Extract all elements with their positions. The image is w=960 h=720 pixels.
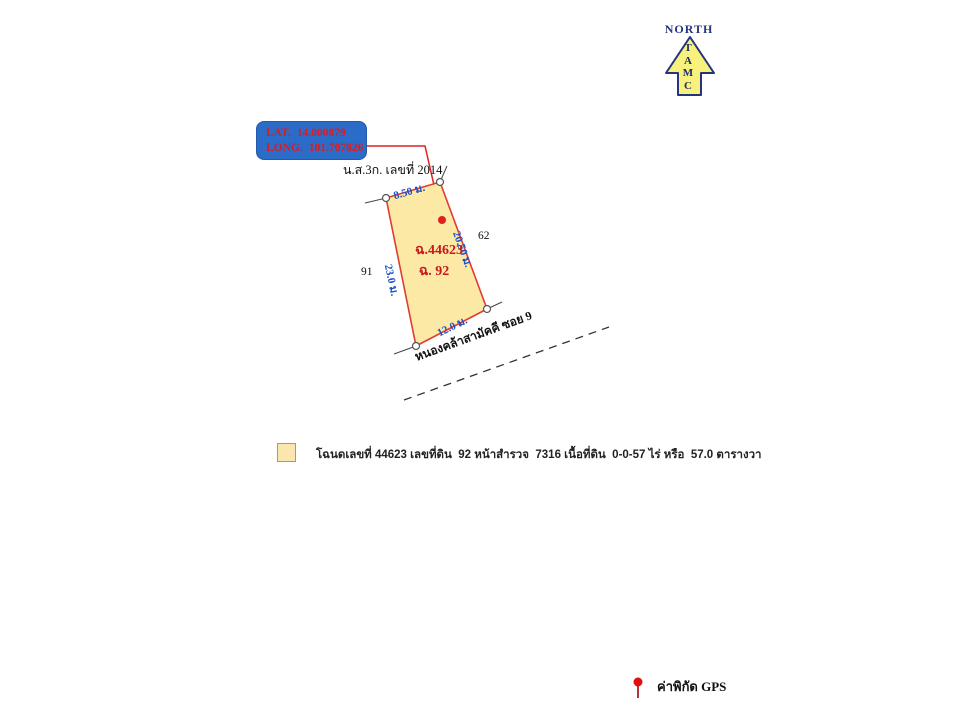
latitude-value: 14.000879 — [297, 127, 346, 140]
gps-legend-label: ค่าพิกัด GPS — [657, 676, 726, 697]
parcel-deed-number: ฉ.44623 — [407, 239, 471, 261]
latitude-label: LAT. — [266, 127, 291, 140]
longitude-label: LONG. — [266, 142, 303, 155]
latitude-row: LAT. 14.000879 — [266, 127, 366, 140]
legend-text: โฉนดเลขที่ 44623 เลขที่ดิน 92 หน้าสำรวจ … — [316, 446, 762, 464]
north-letter-a: A — [684, 55, 692, 68]
legend-parcel-swatch — [277, 443, 296, 462]
neighbor-parcel-left: 91 — [361, 266, 373, 278]
north-arrow-letters: T A M C — [676, 42, 700, 92]
north-letter-t: T — [684, 42, 691, 55]
gps-coordinates-box: LAT. 14.000879 LONG. 101.707826 — [256, 121, 367, 160]
parcel-land-number: ฉ. 92 — [407, 260, 461, 282]
gps-pin-icon — [634, 678, 643, 699]
survey-sketch-canvas: NORTH T A M C LAT. 14.000879 LONG. 101.7… — [0, 0, 960, 720]
north-label: NORTH — [652, 22, 726, 37]
neighbor-parcel-right: 62 — [478, 230, 490, 242]
longitude-value: 101.707826 — [309, 142, 364, 155]
sketch-geometry — [0, 0, 960, 720]
north-letter-c: C — [684, 80, 692, 93]
longitude-row: LONG. 101.707826 — [266, 142, 366, 155]
north-letter-m: M — [683, 67, 693, 80]
